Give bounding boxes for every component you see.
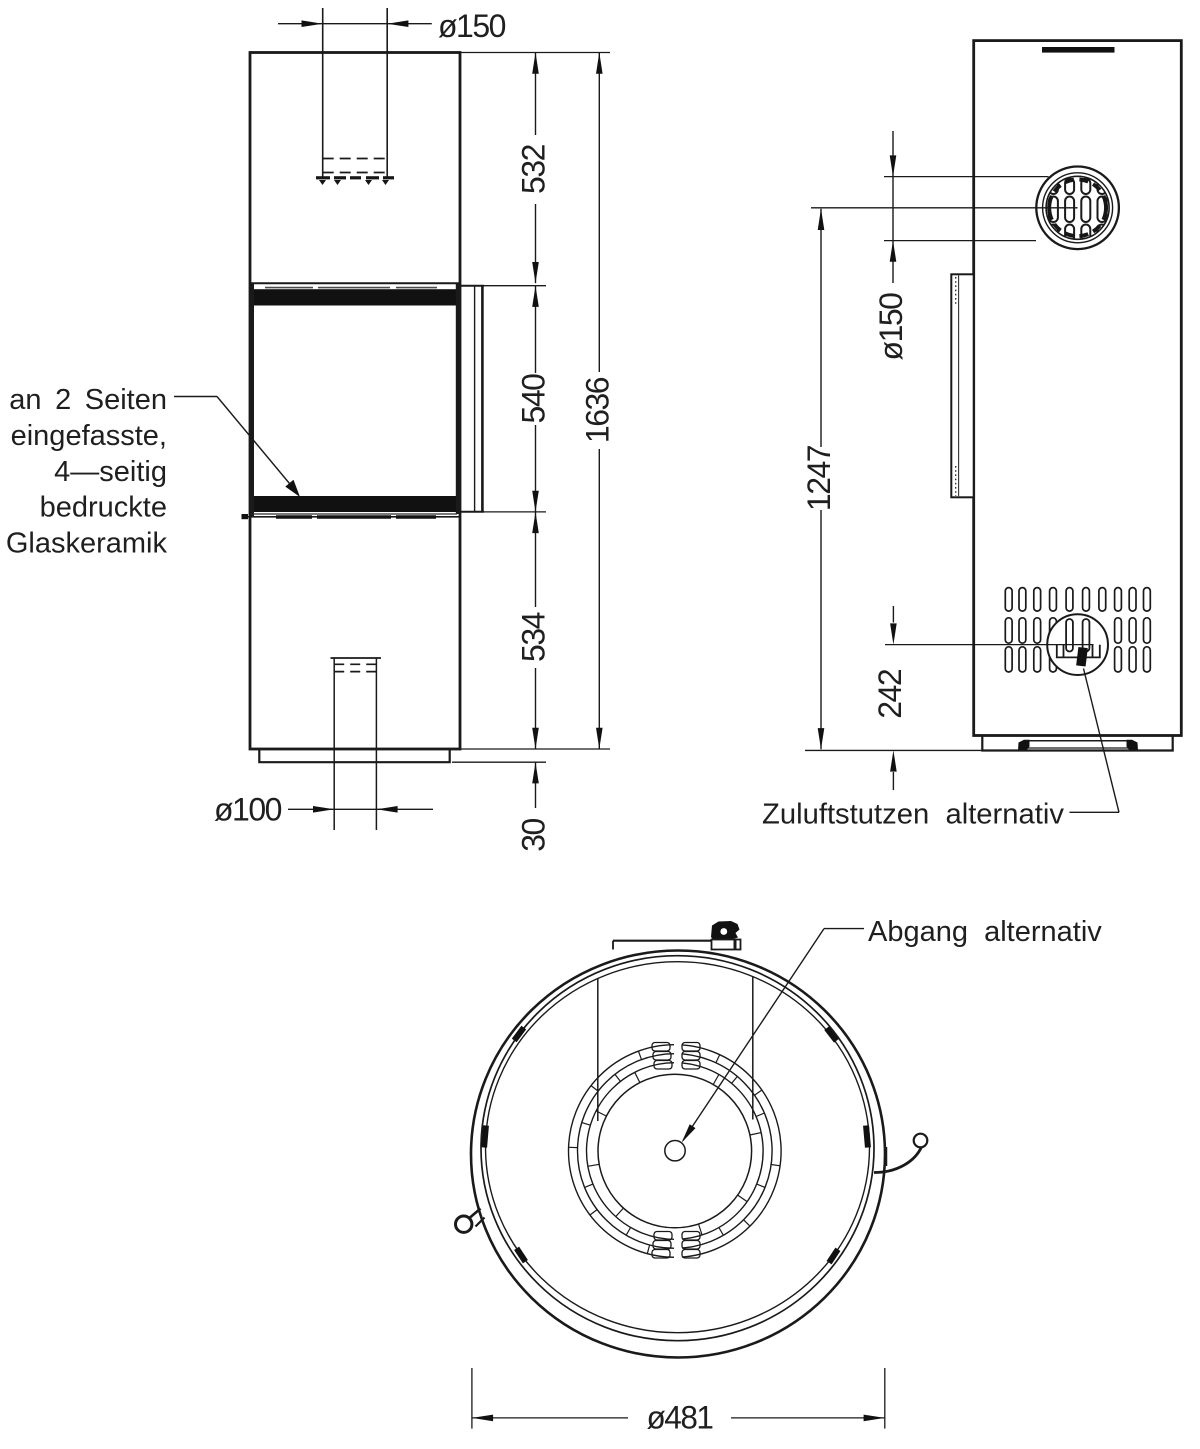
svg-text:ø150: ø150: [873, 293, 909, 361]
svg-text:242: 242: [872, 669, 908, 719]
svg-text:Glaskeramik: Glaskeramik: [6, 528, 168, 560]
svg-text:bedruckte: bedruckte: [40, 492, 167, 524]
svg-text:534: 534: [516, 612, 552, 662]
svg-text:ø100: ø100: [214, 792, 282, 828]
svg-text:540: 540: [516, 374, 552, 424]
svg-text:4—seitig: 4—seitig: [54, 456, 167, 488]
svg-text:ø481: ø481: [647, 1400, 714, 1436]
svg-text:Abgang alternativ: Abgang alternativ: [868, 916, 1102, 948]
svg-text:an 2 Seiten: an 2 Seiten: [9, 384, 167, 416]
svg-text:30: 30: [516, 819, 552, 852]
svg-text:ø150: ø150: [438, 8, 506, 44]
svg-text:1247: 1247: [801, 445, 837, 511]
svg-text:Zuluftstutzen alternativ: Zuluftstutzen alternativ: [762, 799, 1064, 831]
svg-text:532: 532: [516, 144, 552, 194]
svg-text:1636: 1636: [579, 377, 615, 443]
svg-text:eingefasste,: eingefasste,: [11, 420, 167, 452]
